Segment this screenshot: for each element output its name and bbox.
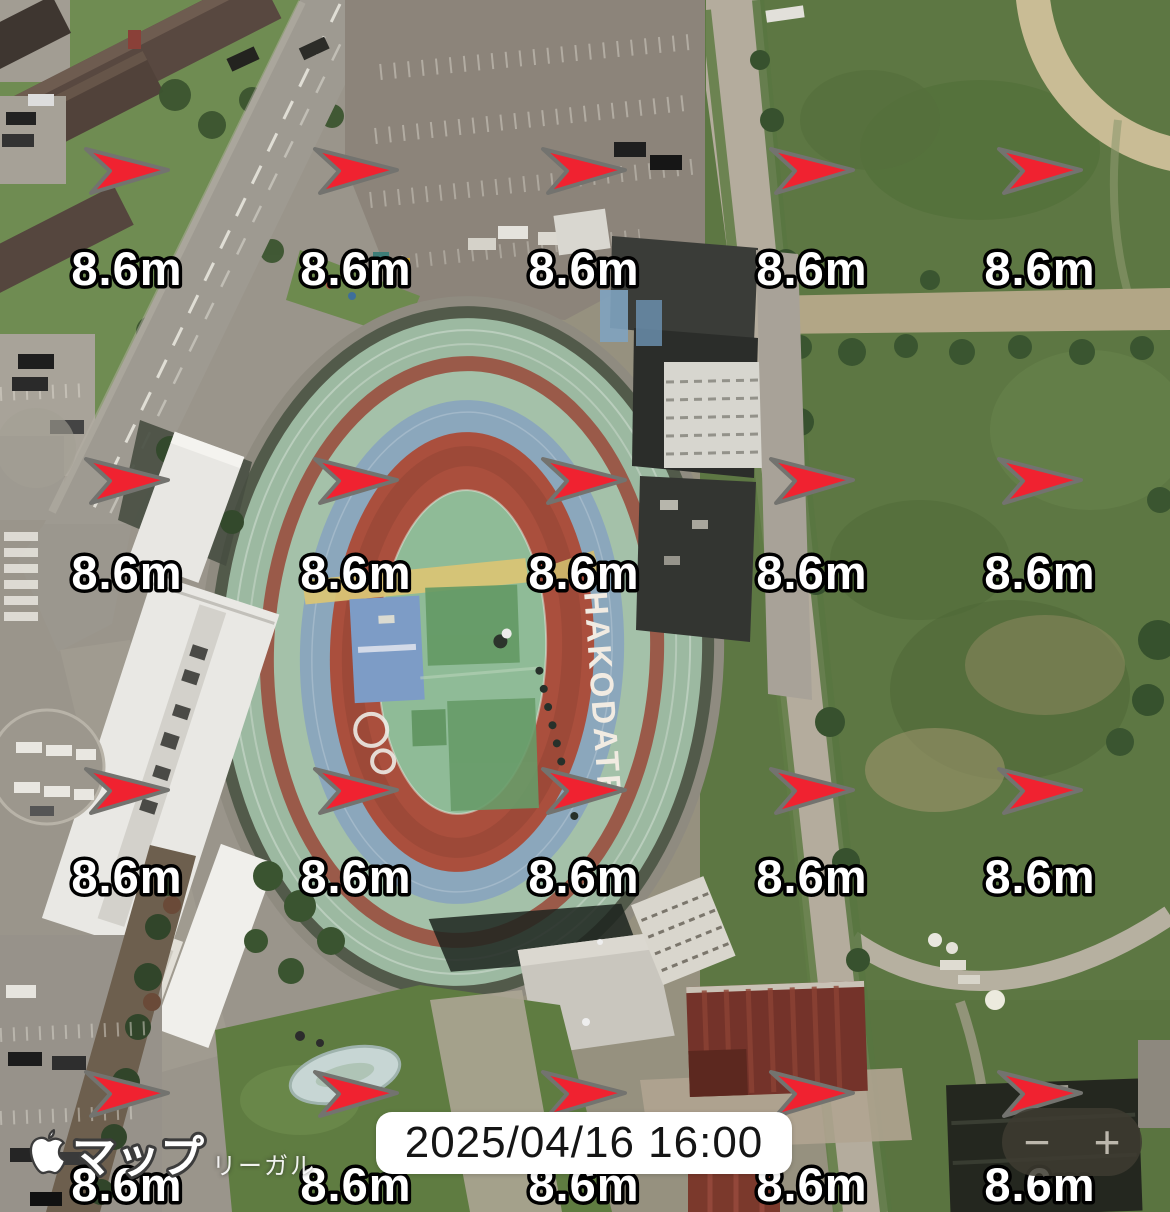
timestamp-chip[interactable]: 2025/04/16 16:00 <box>376 1112 792 1174</box>
red-roof-building <box>686 981 868 1097</box>
zoom-controls: − + <box>1002 1108 1142 1176</box>
zoom-in-button[interactable]: + <box>1072 1108 1142 1176</box>
satellite-map-canvas[interactable]: HAKODATE <box>0 0 1170 1212</box>
timestamp-label: 2025/04/16 16:00 <box>405 1118 764 1168</box>
plus-icon: + <box>1094 1119 1121 1165</box>
apple-logo-icon <box>31 1130 65 1173</box>
maps-app-window: HAKODATE <box>0 0 1170 1212</box>
minus-icon: − <box>1024 1119 1051 1165</box>
dirt-road <box>766 288 1170 334</box>
zoom-out-button[interactable]: − <box>1002 1108 1072 1176</box>
maps-wordmark: マップ <box>72 1133 204 1182</box>
legal-link[interactable]: リーガル <box>212 1146 316 1181</box>
